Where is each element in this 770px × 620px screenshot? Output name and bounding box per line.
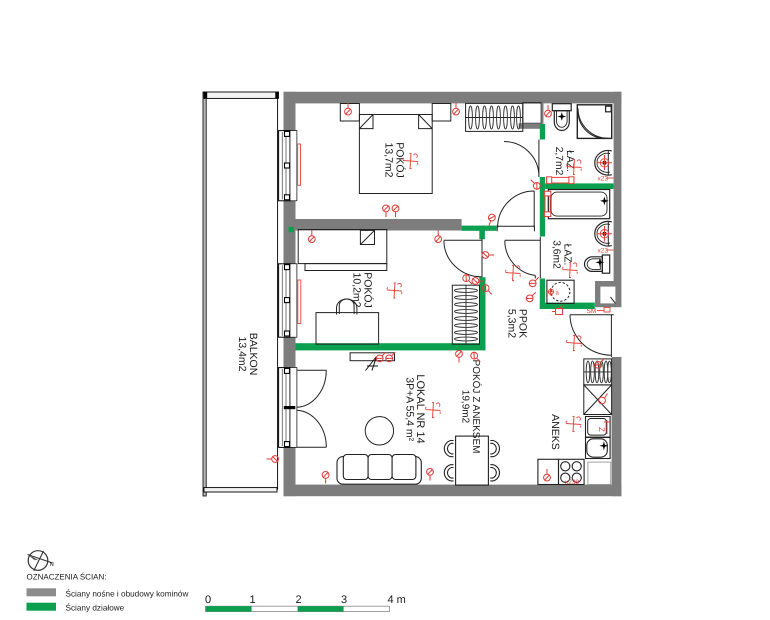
svg-text:POKÓJ Z ANEKSEM: POKÓJ Z ANEKSEM — [470, 360, 482, 454]
svg-text:x23: x23 — [598, 248, 609, 255]
svg-text:13,7m2: 13,7m2 — [383, 142, 395, 177]
svg-text:19,9m2: 19,9m2 — [459, 390, 470, 424]
svg-text:3P+A 55,4 m²: 3P+A 55,4 m² — [404, 377, 416, 441]
svg-text:0: 0 — [205, 594, 211, 606]
svg-text:5,3m2: 5,3m2 — [506, 309, 518, 338]
svg-text:Ściany nośne i obudowy kominów: Ściany nośne i obudowy kominów — [66, 589, 189, 599]
svg-text:ŁAZ.: ŁAZ. — [564, 150, 575, 172]
svg-text:Ściany działowe: Ściany działowe — [66, 603, 125, 613]
svg-text:OZNACZENIA ŚCIAN:: OZNACZENIA ŚCIAN: — [27, 572, 107, 582]
svg-text:2,7m2: 2,7m2 — [553, 147, 564, 176]
svg-text:x230: x230 — [565, 479, 579, 486]
svg-text:1: 1 — [250, 594, 256, 606]
svg-text:ANEKS: ANEKS — [549, 414, 561, 450]
svg-text:3: 3 — [341, 594, 347, 606]
svg-text:10,2m2: 10,2m2 — [351, 272, 363, 307]
svg-text:N: N — [50, 561, 54, 568]
svg-text:4 m: 4 m — [388, 594, 406, 606]
svg-text:Z: Z — [597, 427, 606, 432]
svg-text:13,4m2: 13,4m2 — [236, 336, 248, 371]
svg-text:x23: x23 — [598, 176, 609, 183]
svg-text:3,6m2: 3,6m2 — [551, 240, 562, 269]
svg-text:SM: SM — [587, 308, 597, 315]
svg-text:2: 2 — [296, 594, 302, 606]
